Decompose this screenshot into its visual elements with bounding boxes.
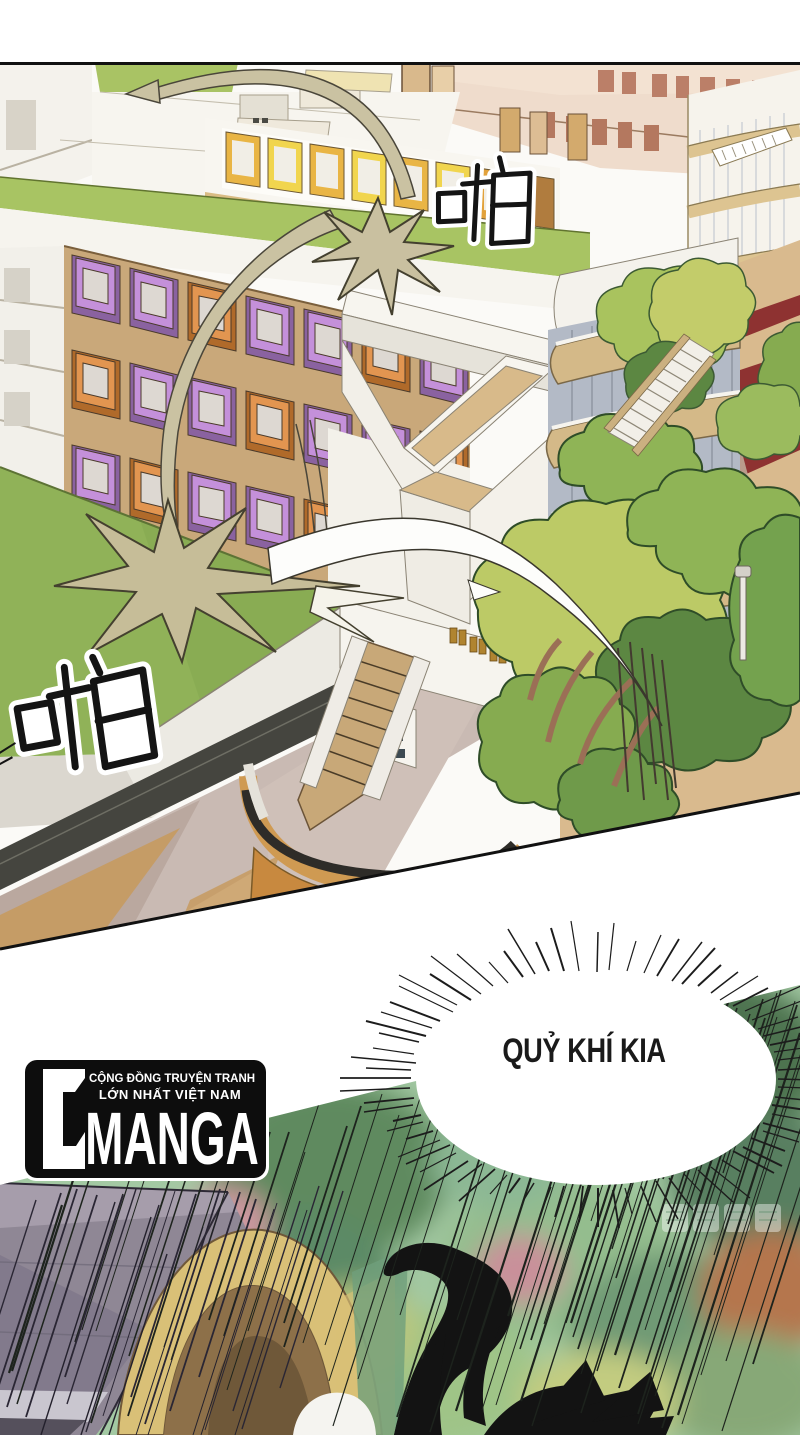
svg-text:CỘNG ĐỒNG TRUYỆN TRANH: CỘNG ĐỒNG TRUYỆN TRANH	[89, 1072, 255, 1085]
svg-text:QUỶ KHÍ KIA: QUỶ KHÍ KIA	[502, 1030, 665, 1070]
svg-text:MANGA: MANGA	[85, 1098, 259, 1181]
